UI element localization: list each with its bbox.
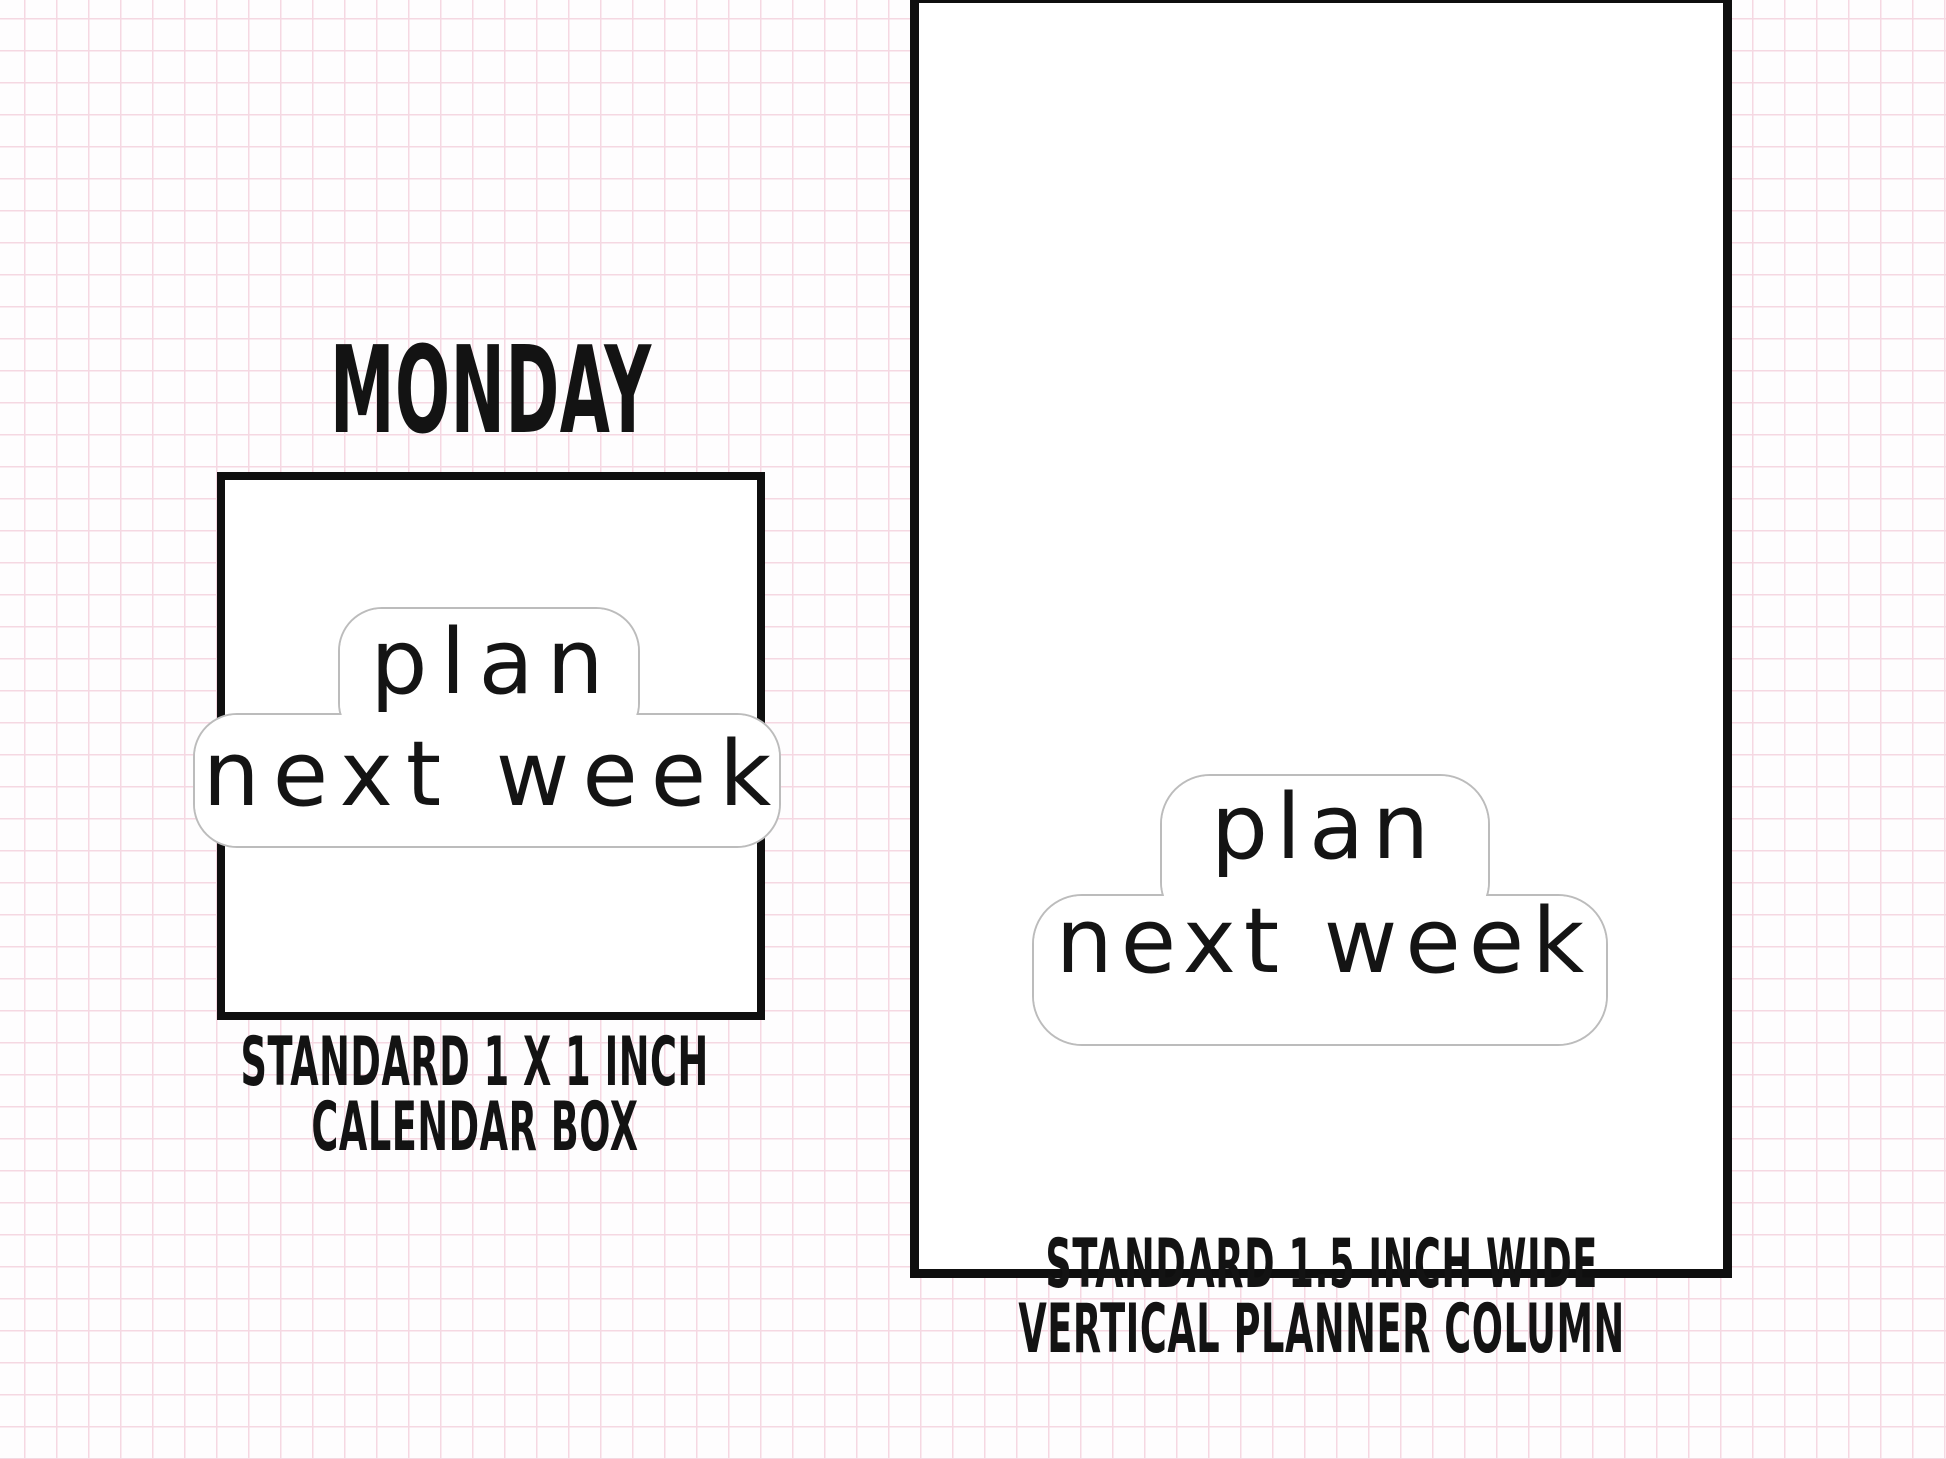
sticker-text-line1: plan (193, 618, 781, 708)
sticker-text-line2: next week (193, 730, 781, 820)
column-caption-line2: VERTICAL PLANNER COLUMN (1042, 1296, 1602, 1364)
column-caption-line1: STANDARD 1.5 INCH WIDE (1042, 1231, 1602, 1299)
sticker-size-mockup: MONDAY plan next week STANDARD 1 X 1 INC… (0, 0, 1946, 1459)
calendar-caption-line1: STANDARD 1 X 1 INCH (195, 1029, 755, 1097)
monday-label: MONDAY (217, 332, 765, 452)
calendar-caption-line2: CALENDAR BOX (195, 1094, 755, 1162)
plan-next-week-sticker-column: plan next week (1032, 774, 1608, 1046)
plan-next-week-sticker-calendar: plan next week (193, 607, 781, 848)
planner-column (910, 0, 1732, 1278)
sticker-text-line2: next week (1032, 897, 1608, 987)
monday-label-text: MONDAY (330, 332, 652, 452)
sticker-text-line1: plan (1032, 783, 1608, 873)
